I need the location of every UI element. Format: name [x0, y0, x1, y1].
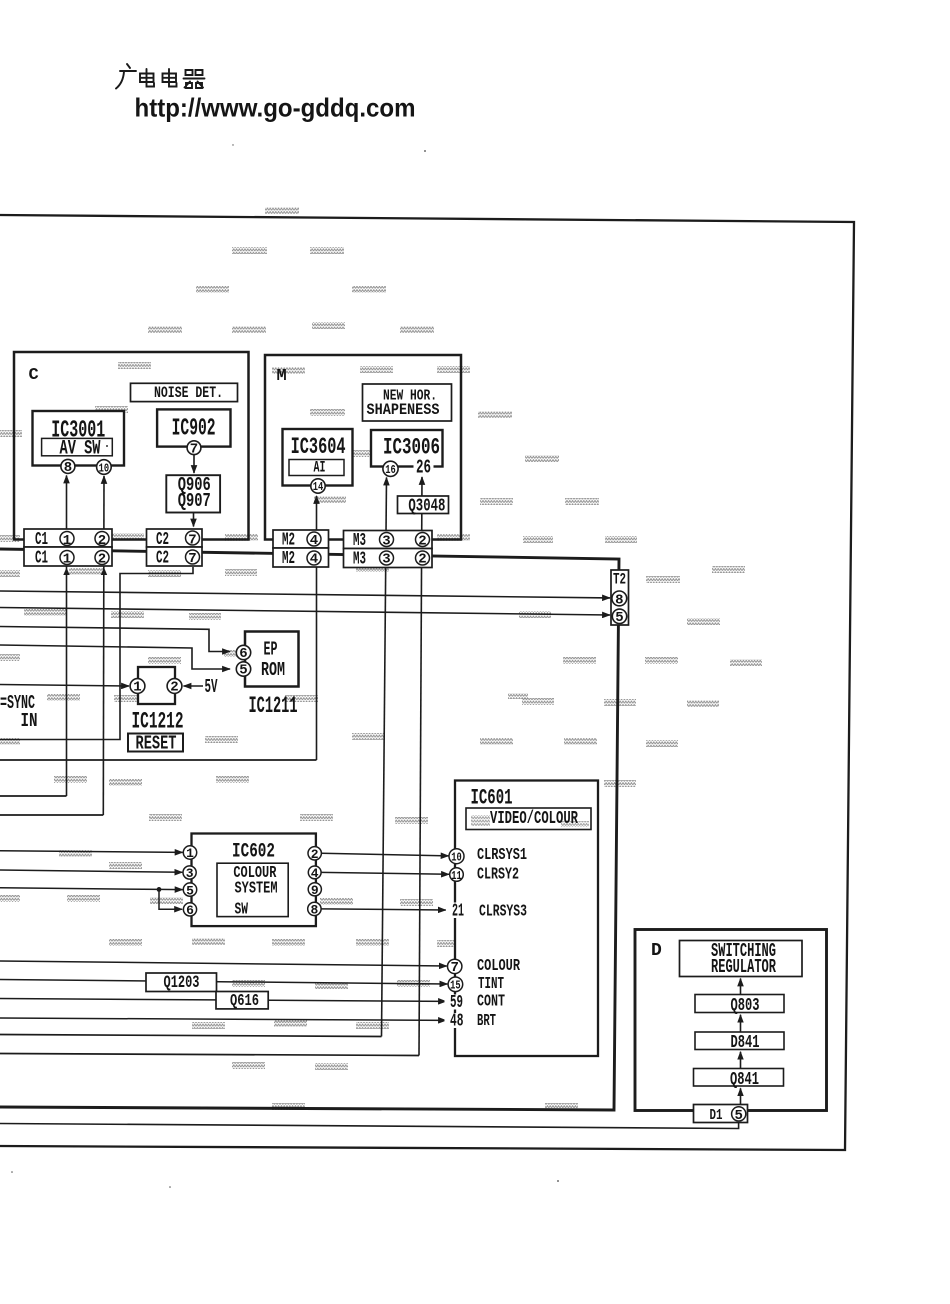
svg-text:5: 5 [734, 1108, 742, 1124]
svg-text:Q616: Q616 [230, 992, 259, 1011]
svg-text:IC601: IC601 [471, 786, 513, 811]
svg-text:Q803: Q803 [731, 996, 760, 1016]
svg-text:9: 9 [311, 883, 319, 898]
svg-text:4: 4 [310, 552, 318, 568]
svg-text:TINT: TINT [478, 975, 504, 994]
svg-text:3: 3 [186, 866, 194, 881]
svg-text:3: 3 [382, 552, 390, 568]
svg-text:59: 59 [450, 993, 463, 1013]
svg-text:26: 26 [416, 457, 431, 479]
svg-text:7: 7 [188, 551, 196, 567]
svg-text:Q1203: Q1203 [164, 973, 200, 993]
svg-text:2: 2 [98, 552, 106, 568]
svg-text:IC3604: IC3604 [291, 434, 346, 460]
svg-text:CLRSYS1: CLRSYS1 [477, 846, 527, 865]
svg-text:Q841: Q841 [730, 1070, 759, 1090]
svg-text:10: 10 [99, 461, 110, 475]
svg-text:IC1211: IC1211 [249, 693, 298, 719]
svg-text:M: M [277, 367, 287, 386]
svg-text:10: 10 [451, 851, 462, 865]
svg-text:SHAPENESS: SHAPENESS [367, 401, 440, 419]
svg-text:IC1212: IC1212 [132, 709, 184, 735]
svg-text:15: 15 [450, 979, 461, 993]
svg-text:EP: EP [264, 639, 278, 661]
svg-text:8: 8 [615, 592, 623, 608]
svg-text:C2: C2 [156, 548, 169, 568]
svg-text:7: 7 [188, 533, 196, 549]
svg-text:T2: T2 [613, 571, 626, 589]
svg-text:4: 4 [311, 866, 319, 881]
svg-text:16: 16 [385, 463, 396, 477]
svg-text:NOISE DET.: NOISE DET. [154, 384, 223, 402]
svg-text:VIDEO/COLOUR: VIDEO/COLOUR [490, 809, 578, 829]
svg-text:http://www.go-gddq.com: http://www.go-gddq.com [135, 93, 416, 123]
svg-text:D: D [651, 941, 662, 961]
svg-text:IC602: IC602 [232, 841, 275, 864]
svg-text:CLRSYS3: CLRSYS3 [479, 903, 527, 922]
svg-text:IC902: IC902 [172, 416, 216, 443]
svg-text:3: 3 [382, 534, 390, 550]
svg-text:SYSTEM: SYSTEM [235, 880, 278, 899]
svg-text:CLRSY2: CLRSY2 [477, 866, 519, 885]
svg-text:COLOUR: COLOUR [477, 957, 521, 976]
svg-text:BRT: BRT [477, 1012, 496, 1031]
svg-text:Q3048: Q3048 [408, 497, 445, 517]
svg-text:2: 2 [418, 552, 426, 568]
svg-text:5: 5 [186, 883, 194, 898]
svg-text:14: 14 [313, 480, 324, 494]
svg-text:IN: IN [21, 710, 38, 732]
svg-text:48: 48 [450, 1012, 464, 1032]
svg-text:Q907: Q907 [178, 490, 211, 512]
svg-text:C1: C1 [35, 548, 48, 568]
svg-text:6: 6 [186, 903, 194, 918]
svg-text:21: 21 [452, 902, 464, 922]
svg-text:5: 5 [615, 610, 623, 626]
svg-text:D841: D841 [731, 1033, 760, 1053]
svg-text:7: 7 [190, 441, 198, 457]
svg-text:8: 8 [64, 460, 72, 476]
svg-text:5: 5 [239, 663, 247, 679]
svg-text:5V: 5V [205, 676, 218, 698]
svg-text:4: 4 [310, 533, 318, 549]
svg-text:1: 1 [133, 680, 141, 696]
svg-text:M3: M3 [353, 550, 366, 570]
svg-text:1: 1 [186, 846, 194, 861]
svg-text:D1: D1 [710, 1107, 723, 1124]
svg-text:RESET: RESET [136, 733, 177, 755]
svg-text:IC3006: IC3006 [383, 435, 440, 461]
svg-text:2: 2 [418, 534, 426, 550]
svg-text:SW: SW [235, 901, 249, 920]
svg-text:2: 2 [311, 847, 319, 862]
svg-text:AI: AI [314, 459, 326, 477]
svg-text:CONT: CONT [477, 993, 505, 1012]
svg-text:1: 1 [63, 552, 71, 568]
svg-text:REGULATOR: REGULATOR [711, 956, 776, 978]
svg-text:8: 8 [310, 903, 318, 918]
svg-text:7: 7 [450, 960, 458, 976]
svg-text:C: C [29, 366, 39, 385]
svg-text:6: 6 [239, 646, 247, 662]
svg-text:11: 11 [451, 869, 462, 883]
svg-text:M2: M2 [282, 549, 295, 569]
svg-text:2: 2 [170, 680, 178, 696]
svg-text:AV SW: AV SW [60, 437, 101, 460]
svg-text:ROM: ROM [261, 659, 285, 681]
